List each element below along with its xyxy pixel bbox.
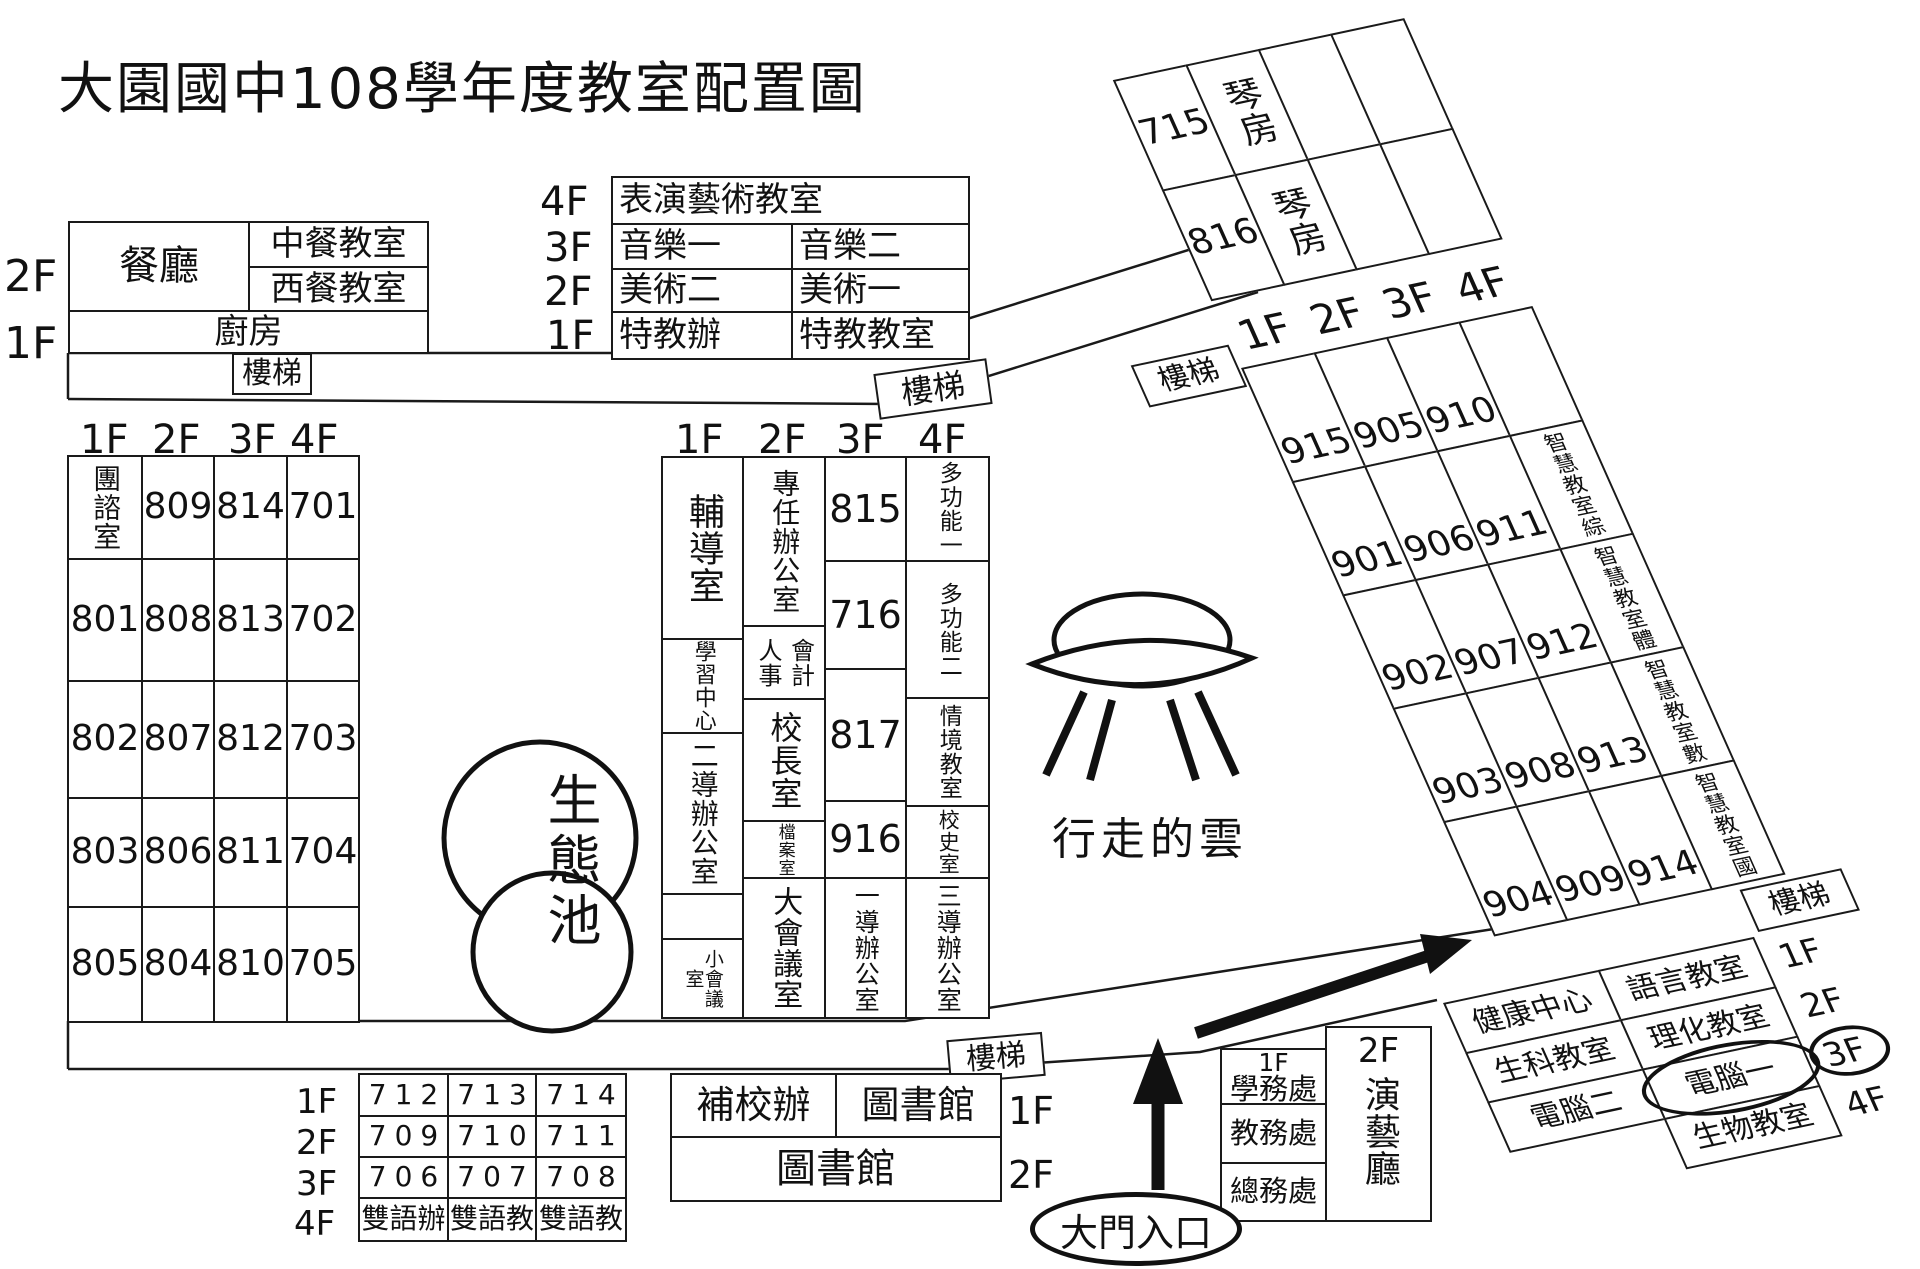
room-counseling-office: 輔導室 (661, 456, 744, 640)
room-703: 703 (286, 680, 360, 799)
west-floor1-label: 1F (80, 420, 128, 460)
admin-floor2-label: 2F (758, 420, 806, 460)
room-chinese-cooking: 中餐教室 (248, 221, 429, 268)
room-situational: 情境教室 (905, 697, 990, 807)
sw-floor1-label: 1F (296, 1085, 337, 1119)
room-grade1-office: 一導辦公室 (824, 877, 907, 1019)
room-707: 707 (447, 1156, 537, 1199)
cafeteria-floor1-label: 1F (4, 322, 57, 366)
room-bilingual-class-2: 雙語教 (535, 1197, 627, 1242)
room-dining-hall: 餐廳 (68, 221, 250, 312)
room-811: 811 (213, 797, 288, 908)
room-706: 706 (358, 1156, 449, 1199)
room-814: 814 (213, 455, 288, 560)
empty-cell (661, 893, 744, 940)
room-sped-classroom: 特教教室 (791, 311, 970, 360)
room-710: 710 (447, 1115, 537, 1158)
room-805: 805 (67, 906, 143, 1023)
room-711: 711 (535, 1115, 627, 1158)
room-bilingual-class-1: 雙語教 (447, 1197, 537, 1242)
west-floor3-label: 3F (228, 420, 276, 460)
room-library-2f: 圖書館 (670, 1136, 1002, 1202)
office-general-affairs: 總務處 (1220, 1162, 1327, 1222)
campus-map: 大園國中108學年度教室配置圖 2F 1F 餐廳 中餐教室 西餐教室 廚房 樓梯… (0, 0, 1920, 1269)
admin-floor4-label: 4F (918, 420, 966, 460)
library-floor2-label: 2F (1008, 1156, 1054, 1194)
room-803: 803 (67, 797, 143, 908)
room-716: 716 (824, 560, 907, 670)
room-music-1: 音樂一 (611, 223, 793, 270)
main-entrance-label: 大門入口 (1030, 1192, 1242, 1266)
stairs-box-nw: 樓梯 (232, 353, 312, 395)
room-809: 809 (141, 455, 215, 560)
performance-hall-cell: 2F 演藝廳 (1325, 1026, 1432, 1222)
admin-floor1-label: 1F (675, 420, 723, 460)
office-student-affairs-cell: 1F 學務處 (1220, 1048, 1327, 1105)
room-library-1f: 圖書館 (835, 1073, 1002, 1138)
room-western-cooking: 西餐教室 (248, 266, 429, 312)
office-academic-affairs: 教務處 (1220, 1103, 1327, 1164)
room-small-meeting: 小會議室 (661, 938, 744, 1019)
room-806: 806 (141, 797, 215, 908)
room-multi-2: 多功能二 (905, 560, 990, 699)
room-performance-hall: 演藝廳 (1360, 1076, 1397, 1187)
map-title: 大園國中108學年度教室配置圖 (58, 62, 867, 118)
room-art-1: 美術一 (791, 268, 970, 313)
room-802: 802 (67, 680, 143, 799)
sw-floor4-label: 4F (294, 1207, 335, 1241)
room-916: 916 (824, 800, 907, 879)
walking-cloud-label: 行走的雲 (1040, 818, 1260, 862)
room-subject-office: 專任辦公室 (742, 456, 826, 627)
room-school-history: 校史室 (905, 805, 990, 879)
sw-floor2-label: 2F (296, 1126, 337, 1160)
room-813: 813 (213, 558, 288, 682)
sped-floor4-label: 4F (540, 182, 588, 222)
room-music-2: 音樂二 (791, 223, 970, 270)
room-704: 704 (286, 797, 360, 908)
room-hr-accounting: 人事 會計 (742, 625, 826, 700)
room-learning-center: 學習中心 (661, 638, 744, 734)
offices-floor2-label: 2F (1358, 1034, 1399, 1068)
room-hr: 人事 (756, 638, 780, 688)
room-709: 709 (358, 1115, 449, 1158)
room-kitchen: 廚房 (68, 310, 429, 354)
room-713: 713 (447, 1073, 537, 1117)
west-floor4-label: 4F (290, 420, 338, 460)
room-801: 801 (67, 558, 143, 682)
room-705: 705 (286, 906, 360, 1023)
room-bilingual-office: 雙語辦 (358, 1197, 449, 1242)
sw-floor3-label: 3F (296, 1167, 337, 1201)
sped-floor3-label: 3F (544, 228, 592, 268)
room-701: 701 (286, 455, 360, 560)
room-812: 812 (213, 680, 288, 799)
room-817: 817 (824, 668, 907, 802)
admin-floor3-label: 3F (836, 420, 884, 460)
room-810: 810 (213, 906, 288, 1023)
room-principal: 校長室 (742, 698, 826, 822)
room-714: 714 (535, 1073, 627, 1117)
office-student-affairs: 學務處 (1230, 1075, 1317, 1104)
room-archives: 檔案室 (742, 820, 826, 879)
room-accounting: 會計 (788, 638, 812, 688)
room-grade2-office: 二導辦公室 (661, 732, 744, 895)
room-708: 708 (535, 1156, 627, 1199)
library-floor1-label: 1F (1008, 1092, 1054, 1130)
room-performance-art: 表演藝術教室 (611, 176, 970, 225)
cafeteria-floor2-label: 2F (4, 255, 57, 299)
room-night-school-office: 補校辦 (670, 1073, 837, 1138)
room-702: 702 (286, 558, 360, 682)
room-grade3-office: 三導辦公室 (905, 877, 990, 1019)
room-multi-1: 多功能一 (905, 456, 990, 562)
room-art-2: 美術二 (611, 268, 793, 313)
room-808: 808 (141, 558, 215, 682)
room-815: 815 (824, 456, 907, 562)
room-804: 804 (141, 906, 215, 1023)
room-712: 712 (358, 1073, 449, 1117)
walking-cloud-sculpture (1032, 594, 1252, 780)
sped-floor2-label: 2F (544, 272, 592, 312)
ecology-pond-label: 生態池 (542, 772, 596, 982)
room-group-counseling: 團諮室 (67, 455, 143, 560)
room-807: 807 (141, 680, 215, 799)
sped-floor1-label: 1F (546, 316, 594, 356)
room-large-meeting: 大會議室 (742, 877, 826, 1019)
room-sped-office: 特教辦 (611, 311, 793, 360)
west-floor2-label: 2F (152, 420, 200, 460)
